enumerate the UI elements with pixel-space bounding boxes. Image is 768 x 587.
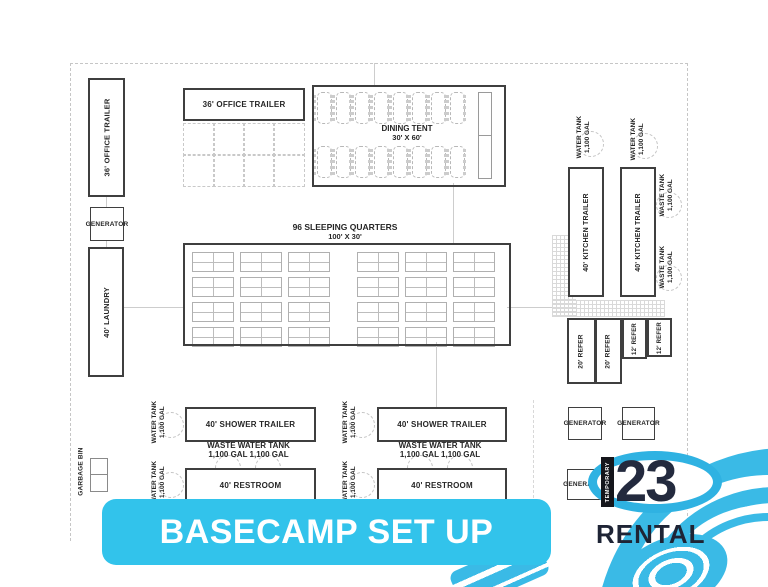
wwt-1-line2: 1,100 GAL 1,100 GAL bbox=[185, 450, 312, 459]
office-trailer-vertical: 36' OFFICE TRAILER bbox=[88, 78, 125, 197]
water-tank-bm2-text: WATER TANK1,100 GAL bbox=[342, 461, 358, 503]
garbage-bin-label-wrap: GARBAGE BIN bbox=[74, 442, 88, 500]
generator-r2-label: GENERATOR bbox=[617, 420, 660, 427]
logo-digits-23: 23 bbox=[615, 456, 676, 508]
wt-line1: WATER TANK bbox=[151, 401, 158, 443]
generator-r1-label: GENERATOR bbox=[564, 420, 607, 427]
parking-stall bbox=[183, 123, 215, 156]
parking-stall bbox=[273, 123, 305, 156]
shower-trailer-1-label: 40' SHOWER TRAILER bbox=[206, 420, 296, 429]
refer-20-2-label: 20' REFER bbox=[605, 334, 612, 368]
refer-12-2-label: 12' REFER bbox=[657, 322, 663, 354]
wwt-2-line2: 1,100 GAL 1,100 GAL bbox=[377, 450, 503, 459]
generator-left: GENERATOR bbox=[90, 207, 124, 241]
wst-line2: 1,100 GAL bbox=[667, 179, 674, 211]
kitchen-trailer-2: 40' KITCHEN TRAILER bbox=[620, 167, 656, 297]
wt-line1: WATER TANK bbox=[342, 401, 349, 443]
restroom-2: 40' RESTROOM bbox=[377, 468, 507, 502]
kitchen-trailer-1-label: 40' KITCHEN TRAILER bbox=[583, 193, 590, 272]
waste-tank-2-text: WASTE TANK1,100 GAL bbox=[659, 246, 675, 289]
garbage-bin-box-2 bbox=[90, 474, 108, 492]
wt-line2: 1,100 GAL bbox=[350, 466, 357, 498]
basecamp-site-plan: 36' OFFICE TRAILER GENERATOR 40' LAUNDRY… bbox=[0, 0, 768, 587]
logo-temporary-bar: TEMPORARY bbox=[601, 457, 614, 507]
office-trailer-horizontal-label: 36' OFFICE TRAILER bbox=[203, 100, 286, 109]
guide-line bbox=[436, 342, 437, 407]
garbage-bin-label: GARBAGE BIN bbox=[78, 447, 85, 495]
wwt-2-line1: WASTE WATER TANK bbox=[377, 441, 503, 450]
logo-123: TEMPORARY 23 bbox=[601, 456, 676, 508]
generator-left-label: GENERATOR bbox=[86, 221, 129, 228]
refer-20-1-label: 20' REFER bbox=[578, 334, 585, 368]
sleeping-title-line1: 96 SLEEPING QUARTERS bbox=[183, 222, 507, 232]
parking-stall bbox=[213, 154, 245, 187]
basecamp-banner: BASECAMP SET UP bbox=[102, 499, 551, 565]
wt-line1: WATER TANK bbox=[576, 116, 583, 158]
water-tank-bl1-text: WATER TANK1,100 GAL bbox=[151, 401, 167, 443]
office-trailer-vertical-label: 36' OFFICE TRAILER bbox=[102, 99, 111, 177]
logo-rental-text: RENTAL bbox=[596, 519, 700, 550]
wt-line2: 1,100 GAL bbox=[638, 123, 645, 155]
restroom-1-label: 40' RESTROOM bbox=[220, 481, 282, 490]
guide-line bbox=[120, 307, 183, 308]
parking-stall bbox=[183, 154, 215, 187]
shower-trailer-1: 40' SHOWER TRAILER bbox=[185, 407, 316, 442]
water-tank-label-bl1: WATER TANK1,100 GAL bbox=[148, 396, 170, 448]
wt-line1: WATER TANK bbox=[630, 118, 637, 160]
restroom-1: 40' RESTROOM bbox=[185, 468, 316, 502]
parking-stall bbox=[243, 154, 275, 187]
parking-stall bbox=[213, 123, 245, 156]
hatch-walkway-horizontal bbox=[552, 300, 665, 317]
water-tank-tr1-text: WATER TANK1,100 GAL bbox=[576, 116, 592, 158]
waste-tank-label-2: WASTE TANK1,100 GAL bbox=[655, 242, 679, 292]
parking-stall bbox=[243, 123, 275, 156]
refer-12-1-label: 12' REFER bbox=[632, 323, 638, 355]
wt-line1: WATER TANK bbox=[151, 461, 158, 503]
sleeping-quarters-title: 96 SLEEPING QUARTERS 100' X 30' bbox=[183, 222, 507, 241]
water-tank-label-bm1: WATER TANK1,100 GAL bbox=[339, 396, 361, 448]
restroom-2-label: 40' RESTROOM bbox=[411, 481, 473, 490]
guide-line-dashed bbox=[533, 400, 535, 498]
wt-line2: 1,100 GAL bbox=[159, 466, 166, 498]
wst-line1: WASTE TANK bbox=[659, 174, 666, 217]
water-tank-bl2-text: WATER TANK1,100 GAL bbox=[151, 461, 167, 503]
laundry-label: 40' LAUNDRY bbox=[102, 287, 111, 338]
kitchen-trailer-1: 40' KITCHEN TRAILER bbox=[568, 167, 604, 297]
generator-r1: GENERATOR bbox=[568, 407, 602, 440]
dining-tent-title: DINING TENT 30' X 60' bbox=[312, 124, 502, 142]
wt-line2: 1,100 GAL bbox=[350, 406, 357, 438]
refer-20-1: 20' REFER bbox=[567, 318, 596, 384]
water-tank-label-tr2: WATER TANK1,100 GAL bbox=[626, 114, 650, 164]
kitchen-trailer-2-label: 40' KITCHEN TRAILER bbox=[635, 193, 642, 272]
water-tank-label-tr1: WATER TANK1,100 GAL bbox=[572, 112, 596, 162]
waste-water-tank-1: WASTE WATER TANK 1,100 GAL 1,100 GAL bbox=[185, 441, 312, 459]
guide-line bbox=[374, 63, 375, 85]
refer-20-2: 20' REFER bbox=[595, 318, 622, 384]
office-trailer-horizontal: 36' OFFICE TRAILER bbox=[183, 88, 305, 121]
logo-temporary-text: TEMPORARY bbox=[605, 462, 611, 502]
dining-buffet-table bbox=[478, 92, 492, 179]
shower-trailer-2: 40' SHOWER TRAILER bbox=[377, 407, 507, 442]
wwt-1-line1: WASTE WATER TANK bbox=[185, 441, 312, 450]
wt-line1: WATER TANK bbox=[342, 461, 349, 503]
water-tank-tr2-text: WATER TANK1,100 GAL bbox=[630, 118, 646, 160]
generator-r2: GENERATOR bbox=[622, 407, 655, 440]
refer-12-1: 12' REFER bbox=[622, 318, 647, 359]
wt-line2: 1,100 GAL bbox=[159, 406, 166, 438]
banner-title: BASECAMP SET UP bbox=[160, 513, 494, 552]
wst-line1: WASTE TANK bbox=[659, 246, 666, 289]
shower-trailer-2-label: 40' SHOWER TRAILER bbox=[397, 420, 487, 429]
parking-stall bbox=[273, 154, 305, 187]
dining-tent-title-line2: 30' X 60' bbox=[312, 133, 502, 142]
refer-12-2: 12' REFER bbox=[647, 318, 672, 357]
sleeping-quarters bbox=[183, 243, 511, 346]
waste-water-tank-2: WASTE WATER TANK 1,100 GAL 1,100 GAL bbox=[377, 441, 503, 459]
water-tank-bm1-text: WATER TANK1,100 GAL bbox=[342, 401, 358, 443]
laundry-trailer: 40' LAUNDRY bbox=[88, 247, 124, 377]
waste-tank-label-1: WASTE TANK1,100 GAL bbox=[655, 168, 679, 222]
wt-line2: 1,100 GAL bbox=[584, 121, 591, 153]
wst-line2: 1,100 GAL bbox=[667, 251, 674, 283]
sleeping-title-line2: 100' X 30' bbox=[183, 232, 507, 241]
guide-line bbox=[507, 307, 552, 308]
waste-tank-1-text: WASTE TANK1,100 GAL bbox=[659, 174, 675, 217]
dining-tent-title-line1: DINING TENT bbox=[312, 124, 502, 133]
